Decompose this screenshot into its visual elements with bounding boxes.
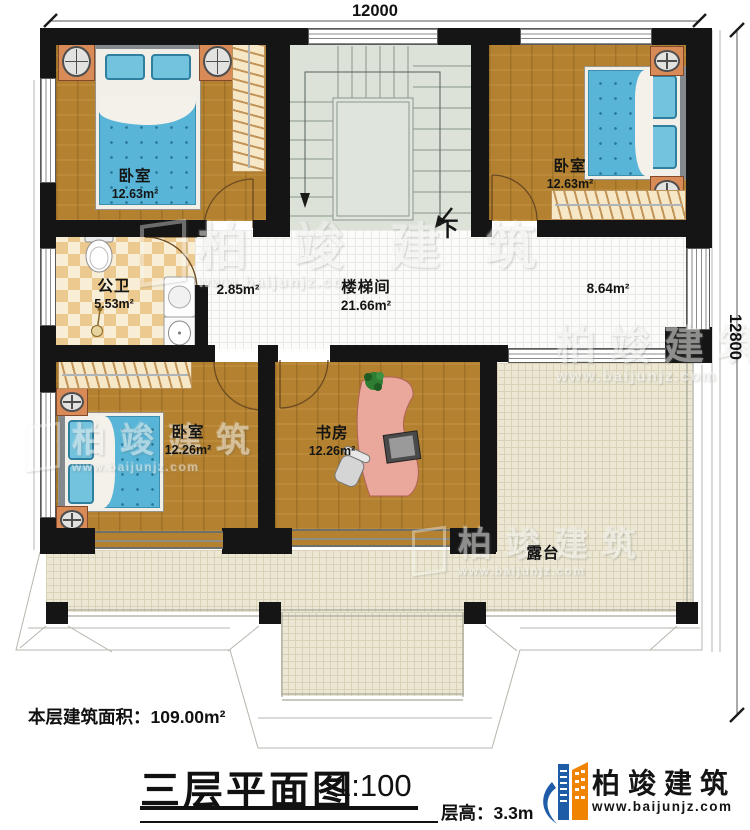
window-sill: [292, 529, 450, 547]
room-area: 21.66m²: [341, 298, 391, 314]
room-name: 露台: [526, 545, 559, 564]
room-label-bedroom-topright: 卧室 12.63m²: [547, 158, 594, 192]
wall: [258, 345, 275, 552]
room-name: 卧室: [165, 424, 212, 443]
pillow: [68, 464, 94, 504]
lamp-icon: [62, 46, 91, 77]
window-sill: [95, 531, 223, 549]
window: [520, 28, 652, 45]
room-label-terrace: 露台: [526, 545, 559, 564]
room-name: 卧室: [547, 158, 594, 177]
wall: [40, 183, 56, 248]
wall: [471, 28, 489, 237]
window: [40, 248, 56, 326]
bed-bottomleft: [58, 412, 164, 512]
area-value: 2.85m²: [217, 282, 260, 298]
landing-area-label: 8.64m²: [587, 281, 630, 297]
room-label-bathroom: 公卫 5.53m²: [94, 278, 134, 312]
wall-pier: [222, 528, 292, 554]
sheet-fold: [95, 416, 115, 508]
terrace-column: [259, 602, 281, 624]
terrace-floor-protrusion: [281, 612, 464, 696]
sheet-fold: [635, 70, 653, 176]
floor-height-note: 层高：3.3m: [441, 800, 533, 825]
window: [308, 28, 438, 45]
room-name: 公卫: [94, 278, 134, 297]
wardrobe: [551, 190, 686, 220]
room-area: 5.53m²: [94, 297, 134, 312]
room-label-bedroom-bottomleft: 卧室 12.26m²: [165, 424, 212, 458]
sliding-door: [508, 348, 666, 363]
wall-pier: [40, 528, 95, 554]
terrace-column: [464, 602, 486, 624]
wall: [480, 345, 497, 552]
dimension-top: 12000: [352, 2, 398, 21]
wall: [686, 28, 712, 248]
lamp-icon: [60, 392, 84, 412]
stairwell-floor: [290, 45, 471, 230]
room-area: 12.26m²: [165, 443, 212, 458]
vestibule-area-label: 2.85m²: [217, 282, 260, 298]
title-underline-thin: [140, 821, 438, 823]
brand-url: www.baijunjz.com: [592, 799, 733, 814]
room-name: 楼梯间: [341, 279, 391, 298]
wall: [665, 327, 712, 363]
wall: [471, 220, 492, 237]
wardrobe: [232, 40, 265, 172]
pillow: [105, 54, 145, 80]
lamp-icon: [60, 510, 84, 530]
window: [686, 248, 710, 330]
window: [40, 392, 56, 518]
down-text: 下: [438, 218, 459, 241]
title-underline-thick: [140, 806, 418, 810]
bed-topright: [584, 66, 688, 180]
wall: [253, 220, 290, 237]
wall: [40, 28, 56, 78]
room-name: 书房: [309, 425, 356, 444]
room-label-bedroom-topleft: 卧室 12.63m²: [112, 168, 159, 202]
nightstand: [199, 42, 236, 81]
wall: [40, 345, 215, 362]
wall-pier: [450, 528, 496, 554]
floor-area-note: 本层建筑面积：109.00m²: [28, 704, 225, 729]
pillow: [151, 54, 191, 80]
terrace-column: [676, 602, 698, 624]
wall: [266, 28, 290, 237]
brand-logo-icon: [536, 754, 590, 828]
bed-headboard: [59, 413, 65, 511]
drawing-scale: 1:100: [334, 768, 412, 804]
floor-plan-page: 柏竣建筑 www.baijunjz.com 柏竣建筑 www.baijunjz.…: [0, 0, 750, 830]
window: [40, 78, 56, 183]
wardrobe: [58, 360, 192, 389]
room-area: 12.26m²: [309, 444, 356, 459]
lamp-icon: [203, 46, 232, 77]
lamp-icon: [654, 50, 680, 72]
wall: [537, 220, 712, 237]
room-area: 12.63m²: [112, 187, 159, 202]
stairs-down-label: 下: [438, 217, 459, 242]
terrace-floor-bottom: [46, 550, 692, 612]
dimension-right: 12800: [725, 314, 744, 360]
area-value: 8.64m²: [587, 281, 630, 297]
nightstand: [56, 388, 88, 416]
terrace-column: [46, 602, 68, 624]
pillow: [649, 125, 677, 169]
wall: [40, 220, 207, 237]
room-area: 12.63m²: [547, 177, 594, 192]
pillow: [68, 420, 94, 460]
study-floor: [275, 362, 480, 530]
nightstand: [650, 46, 684, 76]
room-name: 卧室: [112, 168, 159, 187]
room-label-study: 书房 12.26m²: [309, 425, 356, 459]
nightstand: [58, 42, 95, 81]
brand-name: 柏竣建筑: [592, 762, 736, 802]
room-label-stairwell: 楼梯间 21.66m²: [341, 279, 391, 314]
pillow: [649, 75, 677, 119]
